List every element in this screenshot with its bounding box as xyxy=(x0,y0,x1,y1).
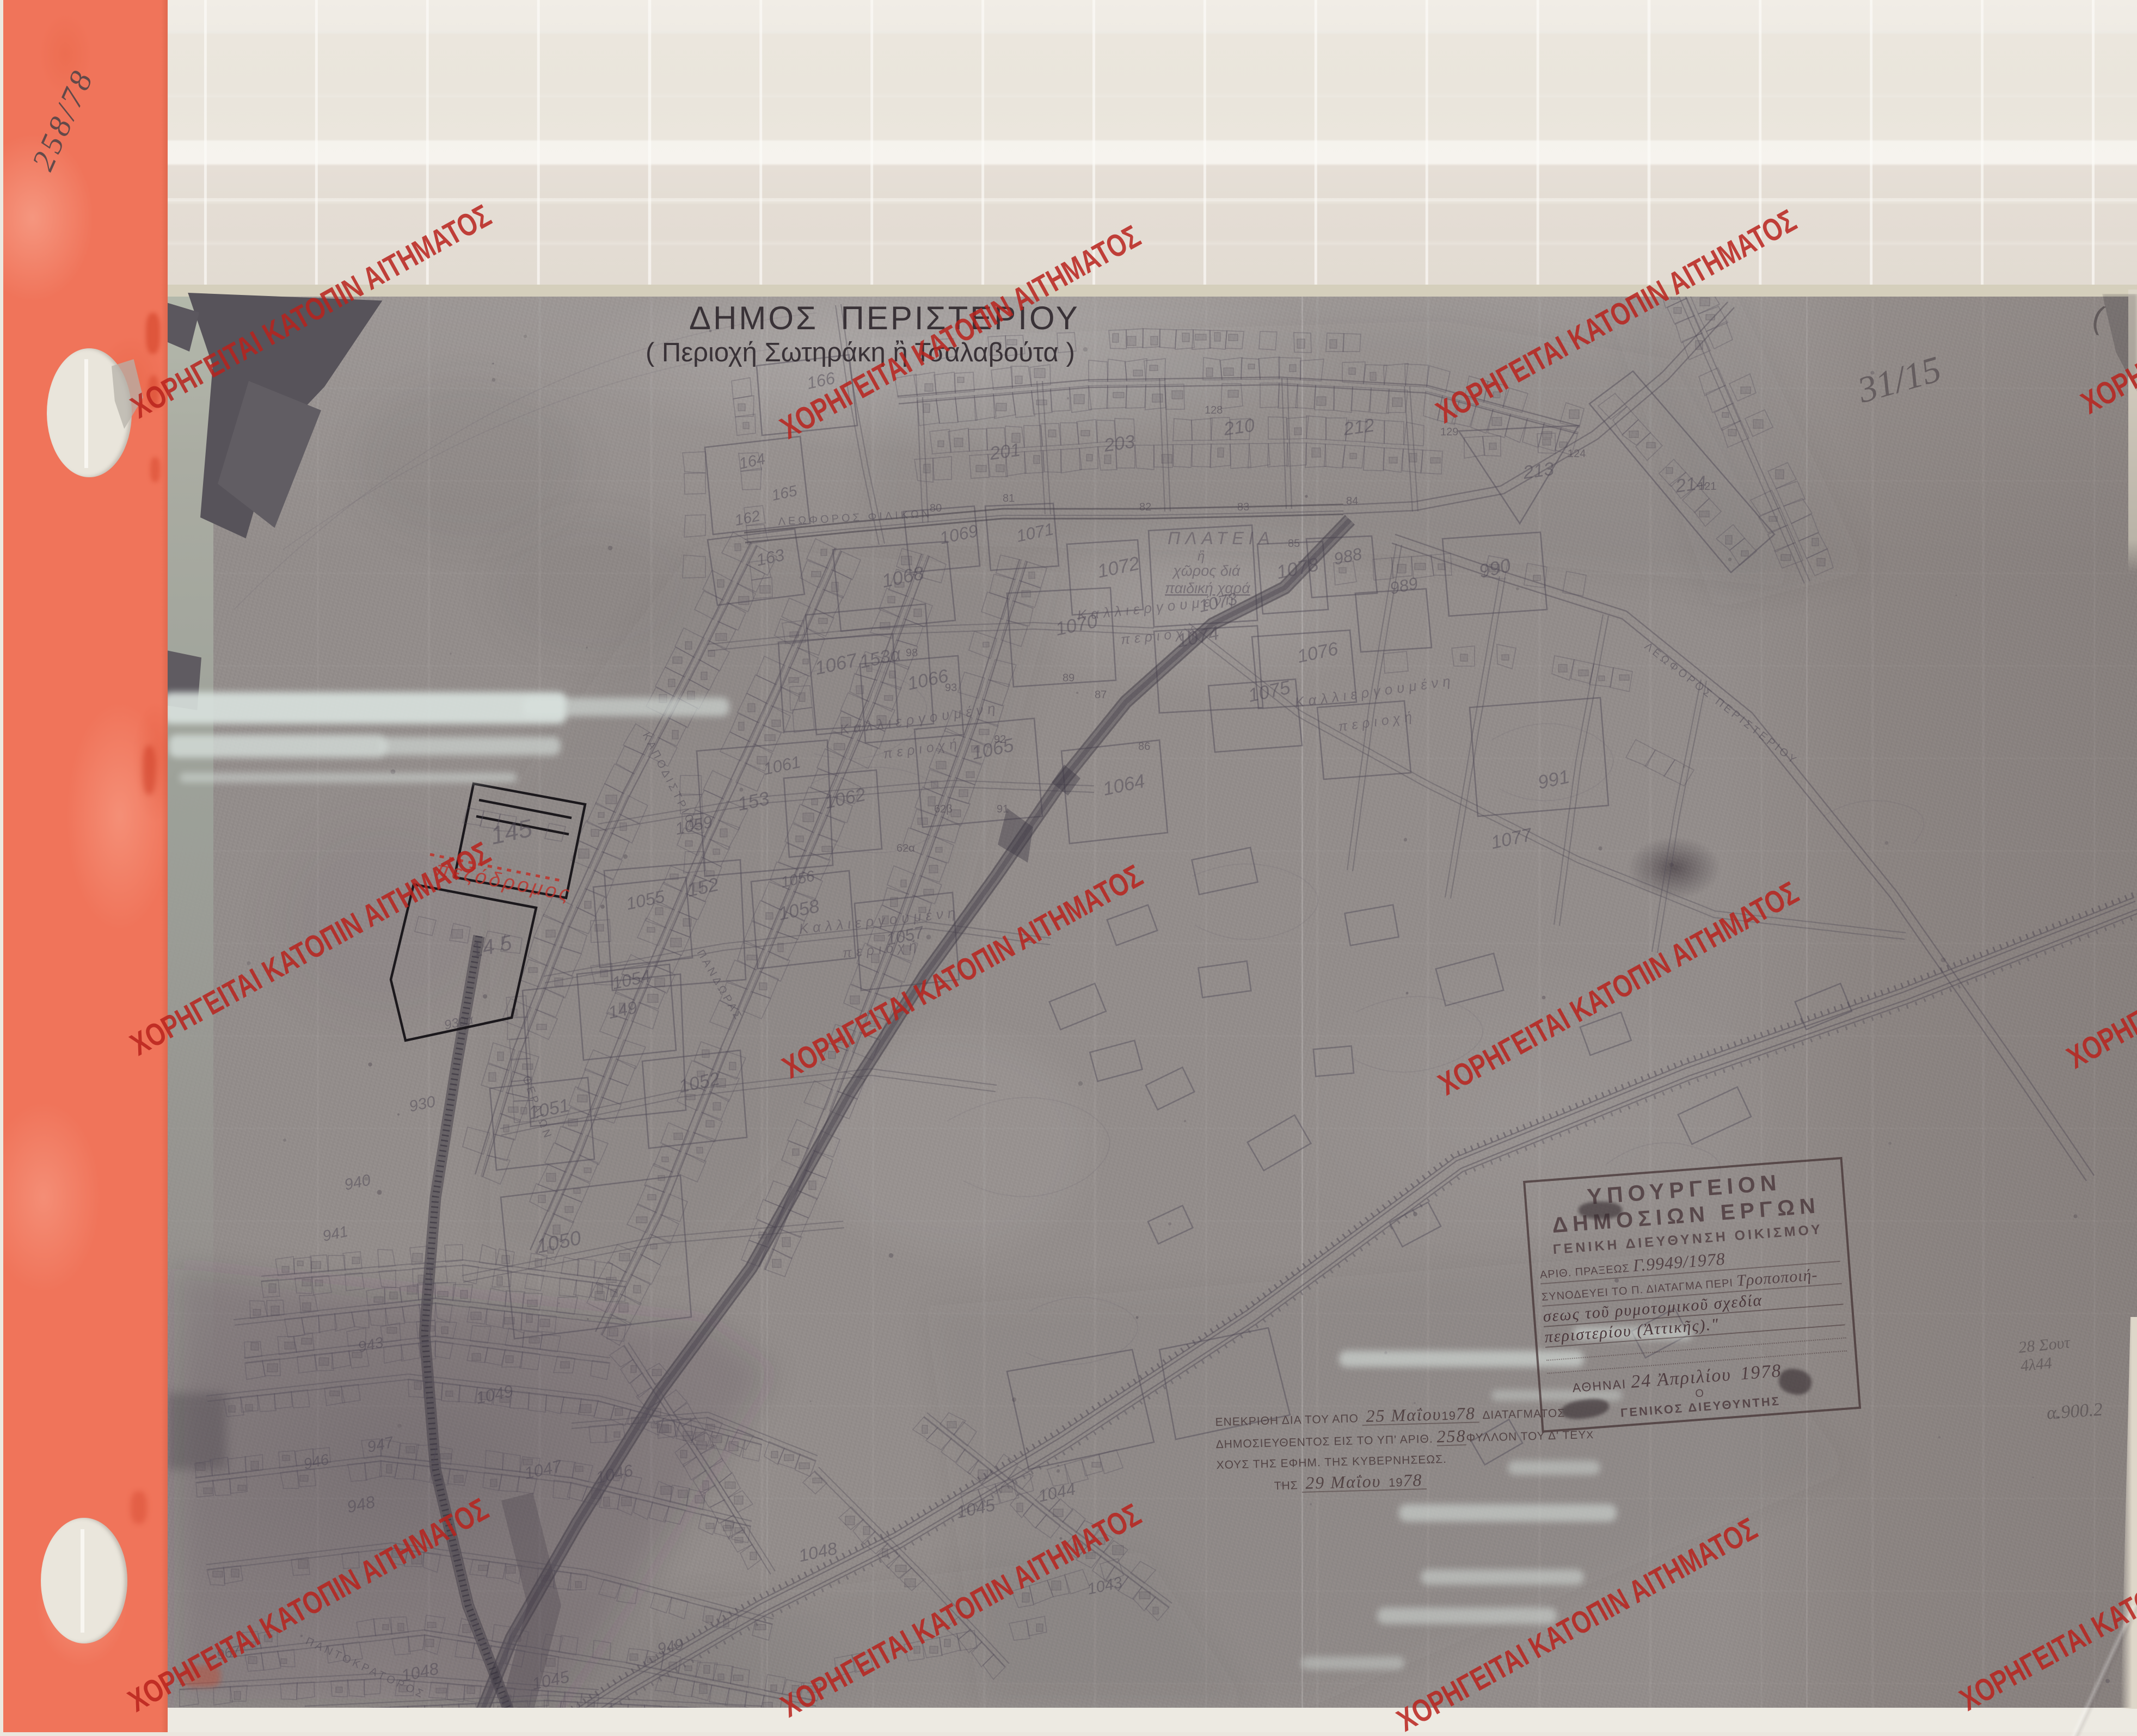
svg-text:ΧΟΡΗΓΕΙΤΑΙ ΚΑΤΟΠΙΝ ΑΙΤΗΜΑΤΟΣ: ΧΟΡΗΓΕΙΤΑΙ ΚΑΤΟΠΙΝ ΑΙΤΗΜΑΤΟΣ xyxy=(125,835,496,1062)
svg-text:ΧΟΡΗΓΕΙΤΑΙ ΚΑΤΟΠΙΝ ΑΙΤΗΜΑΤΟΣ: ΧΟΡΗΓΕΙΤΑΙ ΚΑΤΟΠΙΝ ΑΙΤΗΜΑΤΟΣ xyxy=(1391,1511,1763,1732)
svg-text:ΧΟΡΗΓΕΙΤΑΙ ΚΑΤΟΠΙΝ ΑΙΤΗΜΑΤΟΣ: ΧΟΡΗΓΕΙΤΑΙ ΚΑΤΟΠΙΝ ΑΙΤΗΜΑΤΟΣ xyxy=(125,198,497,425)
svg-text:ΧΟΡΗΓΕΙΤΑΙ ΚΑΤΟΠΙΝ ΑΙΤΗΜΑΤΟΣ: ΧΟΡΗΓΕΙΤΑΙ ΚΑΤΟΠΙΝ ΑΙΤΗΜΑΤΟΣ xyxy=(775,218,1146,446)
svg-text:ΧΟΡΗΓΕΙΤΑΙ ΚΑΤΟΠΙΝ ΑΙΤΗΜΑΤΟΣ: ΧΟΡΗΓΕΙΤΑΙ ΚΑΤΟΠΙΝ ΑΙΤΗΜΑΤΟΣ xyxy=(2061,848,2137,1075)
svg-text:ΧΟΡΗΓΕΙΤΑΙ ΚΑΤΟΠΙΝ ΑΙΤΗΜΑΤΟΣ: ΧΟΡΗΓΕΙΤΑΙ ΚΑΤΟΠΙΝ ΑΙΤΗΜΑΤΟΣ xyxy=(1954,1490,2137,1717)
svg-text:ΧΟΡΗΓΕΙΤΑΙ ΚΑΤΟΠΙΝ ΑΙΤΗΜΑΤΟΣ: ΧΟΡΗΓΕΙΤΑΙ ΚΑΤΟΠΙΝ ΑΙΤΗΜΑΤΟΣ xyxy=(2075,193,2137,421)
svg-text:ΧΟΡΗΓΕΙΤΑΙ ΚΑΤΟΠΙΝ ΑΙΤΗΜΑΤΟΣ: ΧΟΡΗΓΕΙΤΑΙ ΚΑΤΟΠΙΝ ΑΙΤΗΜΑΤΟΣ xyxy=(775,1497,1147,1724)
svg-text:ΧΟΡΗΓΕΙΤΑΙ ΚΑΤΟΠΙΝ ΑΙΤΗΜΑΤΟΣ: ΧΟΡΗΓΕΙΤΑΙ ΚΑΤΟΠΙΝ ΑΙΤΗΜΑΤΟΣ xyxy=(122,1491,494,1719)
svg-text:ΧΟΡΗΓΕΙΤΑΙ ΚΑΤΟΠΙΝ ΑΙΤΗΜΑΤΟΣ: ΧΟΡΗΓΕΙΤΑΙ ΚΑΤΟΠΙΝ ΑΙΤΗΜΑΤΟΣ xyxy=(1433,875,1804,1102)
svg-text:ΧΟΡΗΓΕΙΤΑΙ ΚΑΤΟΠΙΝ ΑΙΤΗΜΑΤΟΣ: ΧΟΡΗΓΕΙΤΑΙ ΚΑΤΟΠΙΝ ΑΙΤΗΜΑΤΟΣ xyxy=(777,858,1149,1085)
svg-text:ΧΟΡΗΓΕΙΤΑΙ ΚΑΤΟΠΙΝ ΑΙΤΗΜΑΤΟΣ: ΧΟΡΗΓΕΙΤΑΙ ΚΑΤΟΠΙΝ ΑΙΤΗΜΑΤΟΣ xyxy=(1430,202,1802,430)
